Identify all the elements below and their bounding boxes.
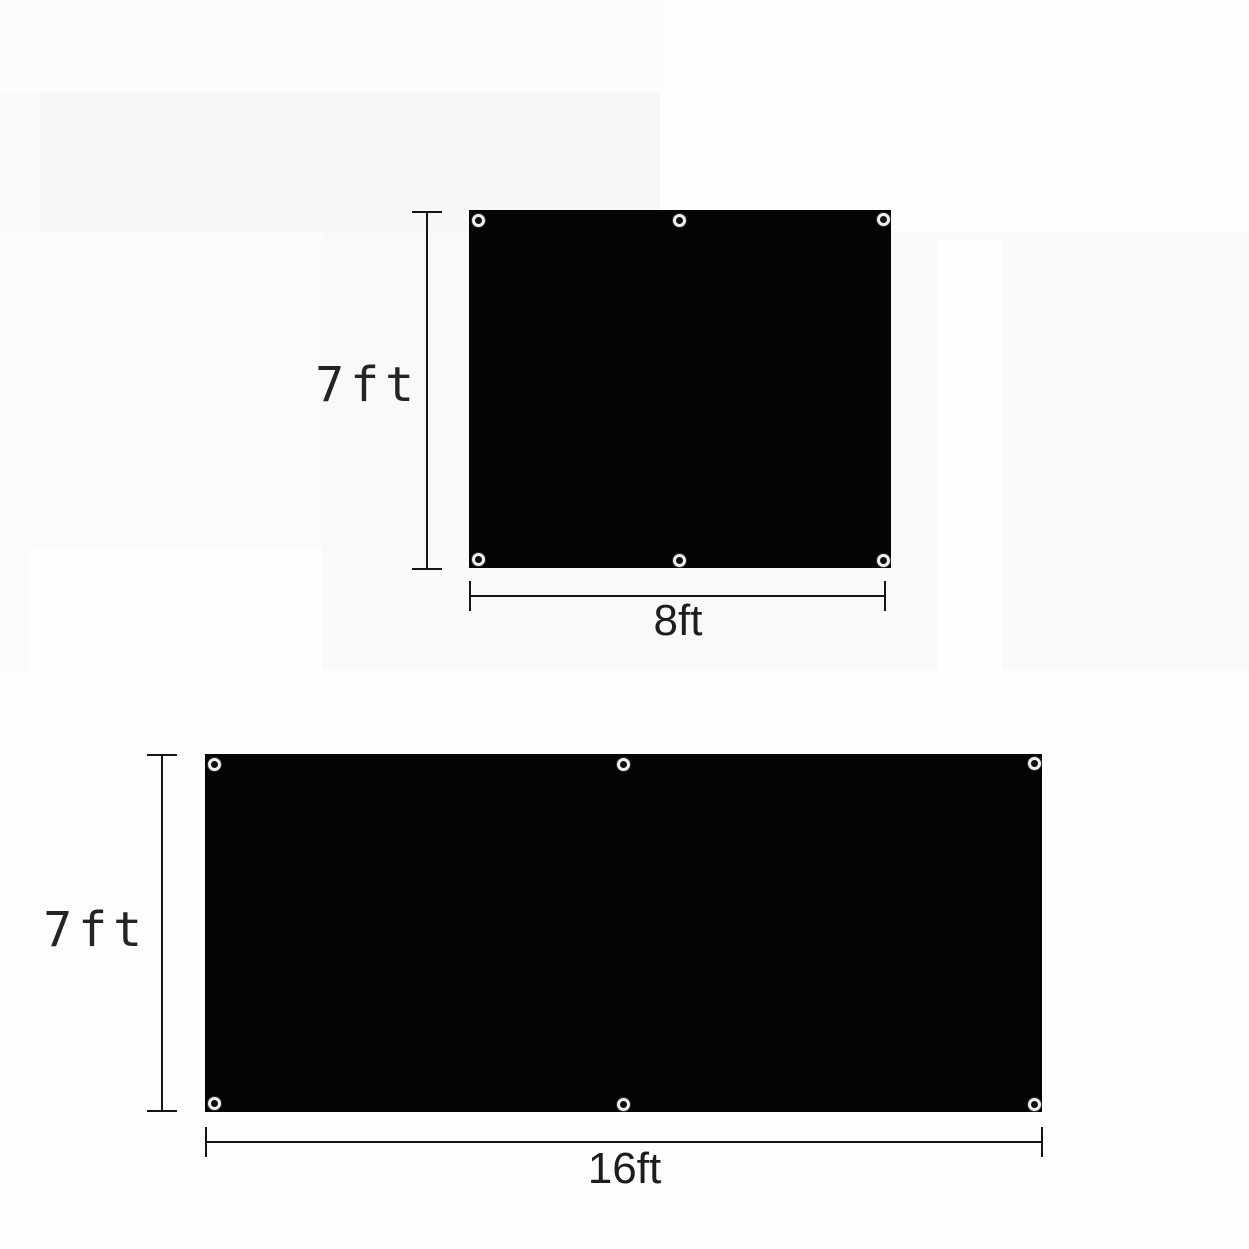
dimension-cap: [147, 1110, 177, 1112]
tarp-fabric: [469, 210, 891, 568]
grommet-icon: [877, 554, 890, 567]
dimension-cap: [412, 568, 442, 570]
background-patch: [0, 0, 660, 92]
grommet-icon: [208, 1097, 221, 1110]
grommet-icon: [1028, 757, 1041, 770]
height-dimension-line: [426, 211, 428, 570]
dimension-cap: [412, 211, 442, 213]
grommet-icon: [208, 758, 221, 771]
grommet-icon: [673, 554, 686, 567]
width-label: 8ft: [470, 598, 886, 644]
grommet-icon: [1028, 1098, 1041, 1111]
height-label: 7ft: [270, 359, 420, 411]
width-label: 16ft: [206, 1146, 1043, 1192]
background-patch: [28, 548, 322, 670]
product-dimension-diagram: 7ft 8ft 7ft: [0, 0, 1249, 1249]
grommet-icon: [617, 1098, 630, 1111]
background-patch: [660, 0, 1249, 233]
tarp-fabric: [205, 754, 1042, 1112]
grommet-icon: [673, 214, 686, 227]
grommet-icon: [877, 213, 890, 226]
grommet-icon: [472, 553, 485, 566]
width-dimension-line: [206, 1141, 1042, 1143]
height-label: 7ft: [0, 904, 148, 956]
background-patch: [938, 240, 1002, 670]
height-dimension-line: [161, 754, 163, 1112]
dimension-cap: [147, 754, 177, 756]
grommet-icon: [617, 758, 630, 771]
grommet-icon: [472, 214, 485, 227]
